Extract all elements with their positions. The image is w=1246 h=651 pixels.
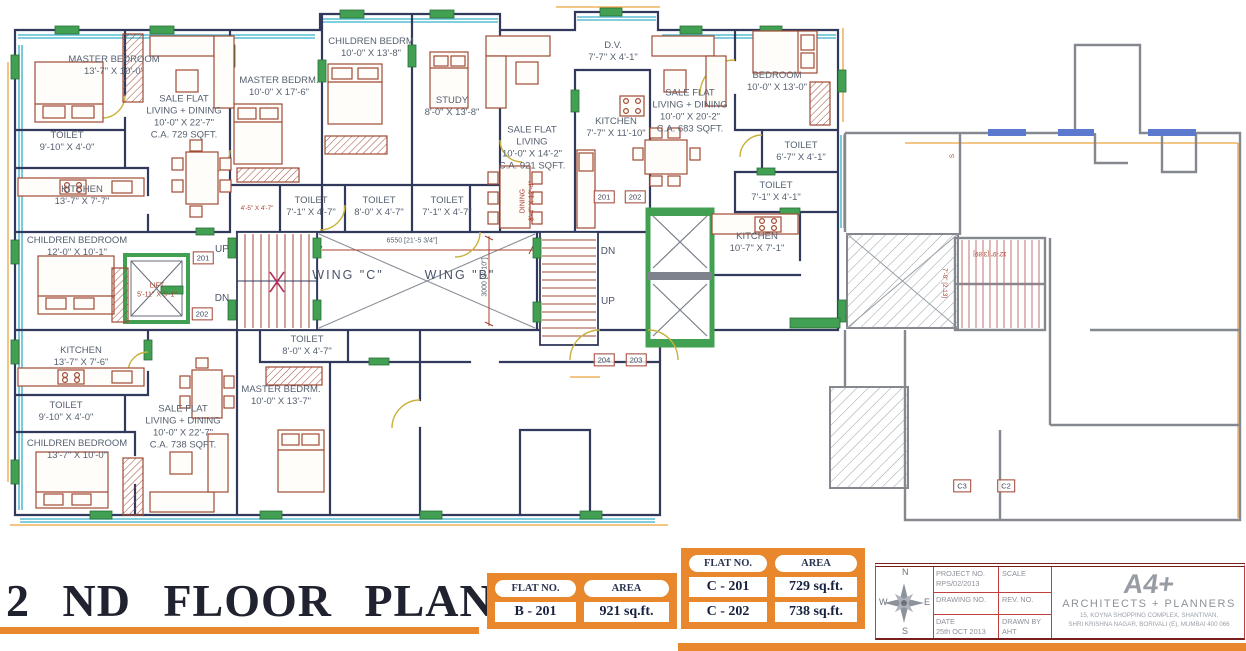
sheet-title: 2 ND FLOOR PLAN <box>6 574 494 627</box>
table-header-flat-no: FLAT NO. <box>495 580 576 597</box>
firm-address-line2: SHRI KRISHNA NAGAR, BORIVALI (E), MUMBAI… <box>1052 621 1246 630</box>
hatched-areas <box>830 234 958 488</box>
firm-name: ARCHITECTS + PLANNERS <box>1052 598 1246 610</box>
bed <box>328 64 382 124</box>
dining-set <box>633 128 700 186</box>
architect-block: A4+ ARCHITECTS + PLANNERS 15, KOYNA SHOP… <box>1052 567 1246 638</box>
title-block-grid: PROJECT NO. RPS/02/2013 SCALE DRAWING NO… <box>933 567 1052 638</box>
compass-e: E <box>924 597 930 607</box>
sofa <box>150 36 234 108</box>
drawn-by-cell: DRAWN BY AHT <box>999 615 1052 638</box>
flat-area-table-c: FLAT NO. AREA C - 201 729 sq.ft. C - 202… <box>681 548 865 629</box>
drawing-no-cell: DRAWING NO. <box>933 593 999 615</box>
dining-set <box>180 358 234 418</box>
compass-w: W <box>879 597 888 607</box>
sofa <box>150 434 228 512</box>
scale-label: SCALE <box>1002 569 1051 579</box>
firm-address: 15, KOYNA SHOPPING COMPLEX, SHANTIVAN, S… <box>1052 612 1246 629</box>
title-block: N W E S PROJECT NO. RPS/02/2013 SCALE DR… <box>875 563 1245 640</box>
compass-n: N <box>902 567 909 577</box>
date-label: DATE <box>936 617 998 627</box>
project-no-cell: PROJECT NO. RPS/02/2013 <box>933 567 999 593</box>
left-staircase <box>237 232 317 330</box>
firm-address-line1: 15, KOYNA SHOPPING COMPLEX, SHANTIVAN, <box>1052 612 1246 621</box>
existing-windows-blue <box>988 129 1196 136</box>
dining-set <box>488 166 542 228</box>
floor-plan-drawing <box>0 0 1246 556</box>
dining-set <box>172 140 231 217</box>
scale-cell: SCALE <box>999 567 1052 593</box>
title-underline-bar <box>0 627 479 634</box>
bed <box>430 52 468 108</box>
bed <box>38 256 114 314</box>
table-cell-area: 738 sq.ft. <box>775 602 857 622</box>
drawn-by-label: DRAWN BY <box>1002 617 1051 627</box>
drawing-no-label: DRAWING NO. <box>936 595 998 605</box>
rev-no-cell: REV. NO. <box>999 593 1052 615</box>
table-cell-area: 921 sq.ft. <box>584 602 669 622</box>
flat-area-table-b: FLAT NO. AREA B - 201 921 sq.ft. <box>487 573 677 629</box>
drawn-by-value: AHT <box>1002 627 1051 637</box>
kitchen-counter <box>712 214 798 234</box>
compass-s: S <box>902 626 908 636</box>
kitchen-counter <box>18 368 144 386</box>
table-cell-area: 729 sq.ft. <box>775 577 857 597</box>
right-staircase <box>540 232 598 345</box>
bed <box>234 104 282 164</box>
bottom-orange-bar <box>678 643 1246 651</box>
bed <box>35 62 103 122</box>
kitchen-counter <box>18 178 144 196</box>
kitchen-counter <box>577 96 644 228</box>
table-header-flat-no: FLAT NO. <box>689 555 767 572</box>
table-cell-flat: C - 202 <box>689 602 767 622</box>
date-cell: DATE 25th OCT 2013 <box>933 615 999 638</box>
project-no-label: PROJECT NO. <box>936 569 998 579</box>
elevator-shaft <box>648 210 712 345</box>
firm-logo: A4+ <box>1050 571 1246 598</box>
table-cell-flat: B - 201 <box>495 602 576 622</box>
sofa <box>652 36 726 106</box>
date-value: 25th OCT 2013 <box>936 627 998 637</box>
bed <box>278 430 324 492</box>
wing-cross <box>319 234 535 328</box>
rev-no-label: REV. NO. <box>1002 595 1051 605</box>
project-no-value: RPS/02/2013 <box>936 579 998 589</box>
table-cell-flat: C - 201 <box>689 577 767 597</box>
table-header-area: AREA <box>775 555 857 572</box>
compass: N W E S <box>876 567 934 638</box>
table-header-area: AREA <box>584 580 669 597</box>
bed <box>36 452 108 508</box>
floor-plan-sheet: MASTER BEDROOM13'-7" X 10'-0"TOILET9'-10… <box>0 0 1246 651</box>
sofa <box>486 36 550 108</box>
bed <box>753 31 817 73</box>
